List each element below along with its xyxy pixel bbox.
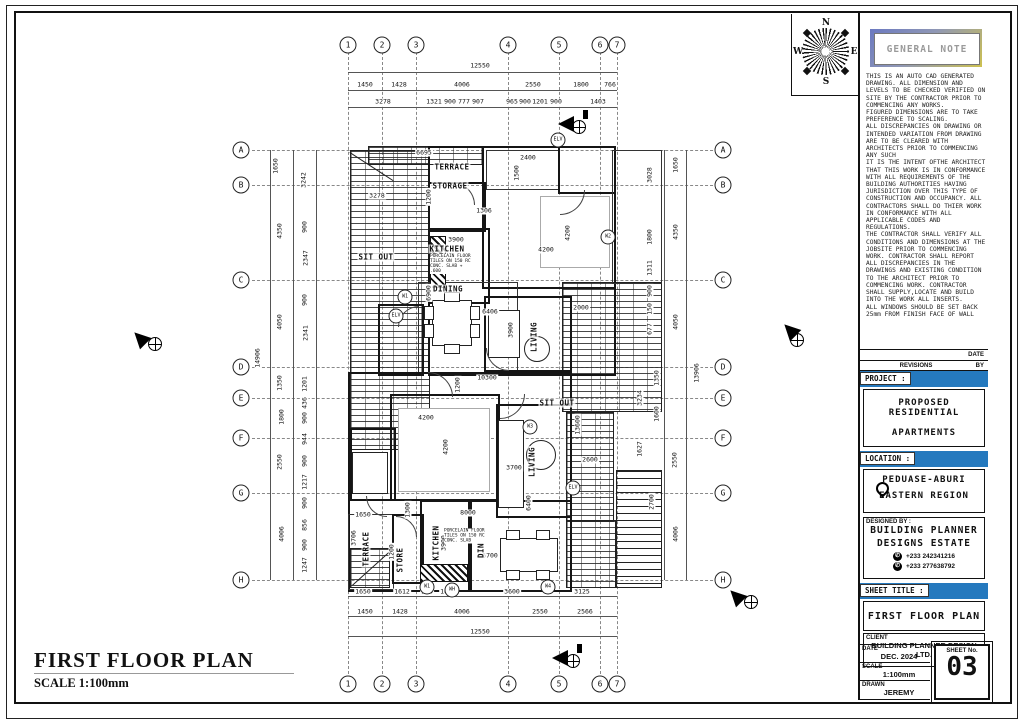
dimension-label: 2550: [672, 451, 679, 469]
grid-bubble-E: E: [233, 390, 250, 407]
dimension-label: 1650: [354, 589, 372, 596]
dimension-label: 1201: [302, 375, 309, 393]
dimension-label: 12550: [469, 63, 491, 70]
drawn-row: DRAWN JEREMY: [860, 680, 930, 700]
dimension-label: 3028: [647, 166, 654, 184]
dimension-label: 1247: [302, 556, 309, 574]
titleblock: GENERAL NOTE THIS IS AN AUTO CAD GENERAT…: [860, 11, 990, 700]
dim-line: [664, 150, 665, 580]
revisions-row: REVISIONS BY: [860, 360, 988, 371]
dimension-label: 766: [603, 82, 617, 89]
date-value: DEC. 2024: [868, 652, 930, 661]
date-row: DATE DEC. 2024: [860, 644, 930, 663]
dimension-label: 4050: [673, 313, 680, 331]
plan-dimension-label: 1200: [426, 188, 433, 206]
plan-dimension-label: 3900: [447, 237, 465, 244]
sheet-title-label: SHEET TITLE :: [860, 584, 929, 597]
dimension-label: 900: [302, 411, 309, 425]
room-label: STORE: [396, 546, 405, 573]
floor-finish-note: PORCELAIN FLOOR TILES ON 150 RC CONC. SL…: [430, 254, 474, 274]
project-line1: PROPOSED RESIDENTIAL: [864, 398, 984, 418]
dimension-label: 900: [302, 538, 309, 552]
room-label: KITCHEN: [428, 245, 465, 254]
dimension-label: 2347: [303, 249, 310, 267]
plan-dimension-label: 8000: [459, 510, 477, 517]
grid-bubble-2: 2: [374, 37, 391, 54]
chair: [424, 306, 434, 320]
plan-dimension-label: 1200: [389, 543, 396, 561]
chair: [444, 292, 460, 302]
dimension-label: 1600: [654, 405, 661, 423]
chair: [536, 530, 550, 540]
dimension-label: 1311: [647, 259, 654, 277]
plan-dimension-label: 1200: [455, 376, 462, 394]
chair: [444, 344, 460, 354]
plan-dimension-label: 4200: [537, 247, 555, 254]
general-note-title: GENERAL NOTE: [887, 44, 968, 55]
location-box: PEDUASE-ABURI EASTERN REGION: [863, 469, 985, 513]
section-marker-flag: [583, 110, 588, 119]
dimension-label: 2550: [524, 82, 542, 89]
plan-dimension-label: 2400: [519, 155, 537, 162]
room-label: SIT OUT: [538, 399, 575, 408]
dimension-label: 4006: [279, 525, 286, 543]
dining-table-lower: [500, 538, 558, 572]
compass-se-icon: [841, 67, 849, 75]
dimension-label: 900: [302, 454, 309, 468]
chair: [506, 530, 520, 540]
plan-dimension-label: 6406: [481, 309, 499, 316]
dimension-label: 1450: [356, 609, 374, 616]
dimension-label: 1321: [425, 99, 443, 106]
dimension-label: 2341: [303, 324, 310, 342]
dimension-label: 4050: [277, 313, 284, 331]
compass-s: S: [823, 77, 830, 87]
dim-line: [348, 90, 617, 91]
dimension-label: 856: [302, 518, 309, 532]
plan-dimension-label: 3700: [505, 465, 523, 472]
grid-bubble-D: D: [233, 359, 250, 376]
grid-bubble-E: E: [715, 390, 732, 407]
grid-bubble-H: H: [715, 572, 732, 589]
revisions-date-row: DATE: [860, 349, 988, 360]
dimension-label: 1217: [302, 473, 309, 491]
dim-line: [348, 596, 617, 597]
dimension-label: 3278: [374, 99, 392, 106]
stairs: [616, 470, 662, 588]
sheet-title-box: FIRST FLOOR PLAN: [863, 601, 985, 631]
section-marker-ring: [566, 654, 580, 668]
dimension-label: 1428: [391, 609, 409, 616]
dimension-label: 1350: [277, 374, 284, 392]
grid-bubble-B: B: [233, 177, 250, 194]
window-marker: WH: [445, 583, 460, 598]
location-bar: LOCATION :: [860, 451, 988, 467]
dimension-label: 436: [302, 396, 309, 410]
plan-dimension-label: 1650: [354, 512, 372, 519]
plan-scale: SCALE 1:100mm: [34, 676, 129, 691]
project-line2: APARTMENTS: [864, 428, 984, 438]
plan-dimension-label: 1300: [405, 501, 412, 519]
grid-bubble-C: C: [715, 272, 732, 289]
grid-bubble-A: A: [233, 142, 250, 159]
plan-dimension-label: 6400: [526, 494, 533, 512]
designer-line2: DESIGNS ESTATE: [864, 538, 984, 549]
dim-line: [270, 150, 271, 580]
scale-value: 1:100mm: [868, 670, 930, 679]
section-marker-ring: [572, 120, 586, 134]
phone-number-2: +233 277638792: [906, 563, 955, 570]
dining-table-upper: [432, 300, 472, 346]
dimension-label: 2550: [277, 453, 284, 471]
general-note-body: THIS IS AN AUTO CAD GENERATED DRAWING. A…: [866, 73, 986, 318]
dimension-label: 4006: [453, 609, 471, 616]
phone-icon: ✆: [893, 562, 902, 571]
grid-bubble-B: B: [715, 177, 732, 194]
plan-dimension-label: 4200: [443, 438, 450, 456]
grid-bubble-7: 7: [609, 37, 626, 54]
dimension-label: 2550: [531, 609, 549, 616]
room-label: DINING: [432, 285, 464, 294]
grid-bubble-5: 5: [551, 37, 568, 54]
dimension-label: 900: [302, 293, 309, 307]
dimension-label: 907: [471, 99, 485, 106]
dimension-label: 3234: [637, 389, 644, 407]
dimension-label: 4350: [277, 222, 284, 240]
dimension-label: 2700: [649, 493, 656, 511]
dimension-label: 900: [302, 496, 309, 510]
dim-line: [348, 616, 617, 617]
dimension-label: 1800: [647, 228, 654, 246]
dim-line: [686, 150, 687, 580]
chair: [536, 570, 550, 580]
designed-by-box: DESIGNED BY : BUILDING PLANNER DESIGNS E…: [863, 517, 985, 579]
drawn-value: JEREMY: [868, 688, 930, 697]
chair: [424, 324, 434, 338]
dimension-label: 900: [443, 99, 457, 106]
room-label: LIVING: [528, 446, 537, 478]
plan-dimension-label: 13600: [575, 414, 582, 436]
hatch-bottom-right: [566, 520, 616, 588]
grid-bubble-D: D: [715, 359, 732, 376]
floor-finish-note: PORCELAIN FLOOR TILES ON 150 RC CONC. SL…: [444, 529, 488, 544]
dim-line: [348, 72, 617, 73]
dimension-label: 1350: [654, 369, 661, 387]
dimension-label: 3242: [301, 171, 308, 189]
wall-right-wing: [612, 150, 662, 284]
dimension-label: 1800: [279, 408, 286, 426]
scale-row: SCALE 1:100mm: [860, 662, 930, 681]
dimension-label: 150: [647, 302, 654, 316]
room-label: STORAGE: [431, 182, 468, 191]
dimension-label: 900: [518, 99, 532, 106]
revisions-title: REVISIONS: [860, 363, 972, 369]
plan-dimension-label: 4200: [417, 415, 435, 422]
chair: [470, 306, 480, 320]
grid-bubble-4: 4: [500, 676, 517, 693]
dimension-label: 965: [505, 99, 519, 106]
dimension-label: 1800: [572, 82, 590, 89]
dimension-label: 4350: [673, 223, 680, 241]
plan-dimension-label: 1500: [514, 164, 521, 182]
grid-bubble-3: 3: [408, 37, 425, 54]
compass-e: E: [851, 47, 858, 57]
room-label: SIT OUT: [357, 253, 394, 262]
section-marker-ring: [744, 595, 758, 609]
grid-bubble-6: 6: [592, 676, 609, 693]
dimension-label: 944: [302, 432, 309, 446]
grid-bubble-F: F: [715, 430, 732, 447]
grid-bubble-G: G: [715, 485, 732, 502]
grid-bubble-3: 3: [408, 676, 425, 693]
section-marker-ring: [148, 337, 162, 351]
revisions-by-label: BY: [976, 363, 984, 369]
dimension-label: 4006: [453, 82, 471, 89]
sheet-no-value: 03: [936, 654, 988, 680]
dimension-label: 677: [647, 322, 654, 336]
room-label: KITCHEN: [432, 524, 441, 561]
dimension-label: 1650: [273, 157, 280, 175]
dimension-label: 1650: [673, 156, 680, 174]
room-label: TERRACE: [433, 163, 470, 172]
grid-bubble-6: 6: [592, 37, 609, 54]
dimension-label: 3125: [573, 589, 591, 596]
plan-dimension-label: 3278: [368, 193, 386, 200]
location-label: LOCATION :: [860, 452, 915, 465]
window-marker: ELV: [551, 133, 566, 148]
dimension-label: 1201: [531, 99, 549, 106]
general-note-frame: GENERAL NOTE: [870, 29, 982, 67]
dimension-label: 1403: [589, 99, 607, 106]
dimension-label: 1428: [390, 82, 408, 89]
room-label: LIVING: [530, 321, 539, 353]
dimension-label: 900: [302, 220, 309, 234]
compass-w: W: [793, 47, 803, 57]
north-compass: N E S W: [791, 14, 859, 96]
grid-bubble-G: G: [233, 485, 250, 502]
plan-dimension-label: 10300: [476, 375, 498, 382]
window-marker: W1: [398, 290, 413, 305]
dimension-label: 1627: [637, 440, 644, 458]
dimension-label: 1612: [393, 589, 411, 596]
dimension-label: 900: [549, 99, 563, 106]
window-marker: ELV: [389, 309, 404, 324]
compass-n: N: [822, 18, 830, 28]
meta-grid: DATE DEC. 2024 SCALE 1:100mm DRAWN JEREM…: [860, 644, 988, 700]
window-marker: W4: [541, 580, 556, 595]
chair: [506, 570, 520, 580]
window-marker: W1: [420, 580, 435, 595]
project-label: PROJECT :: [860, 372, 911, 385]
dimension-label: 2566: [576, 609, 594, 616]
grid-bubble-5: 5: [551, 676, 568, 693]
grid-bubble-1: 1: [340, 676, 357, 693]
grid-bubble-A: A: [715, 142, 732, 159]
chair: [470, 324, 480, 338]
grid-bubble-2: 2: [374, 676, 391, 693]
dimension-label: 14906: [255, 347, 262, 369]
dim-line: [293, 150, 294, 580]
plan-dimension-label: 6695: [415, 150, 433, 157]
phone-icon: ✆: [893, 552, 902, 561]
plan-title: FIRST FLOOR PLAN: [34, 648, 294, 674]
revisions-date-label: DATE: [968, 352, 984, 358]
plan-dimension-label: 3706: [351, 529, 358, 547]
plan-dimension-label: 2600: [581, 457, 599, 464]
window-marker: W2: [601, 230, 616, 245]
window-marker: W3: [523, 420, 538, 435]
project-box: PROPOSED RESIDENTIAL APARTMENTS: [863, 389, 985, 447]
dimension-label: 900: [647, 284, 654, 298]
sheet-title-value: FIRST FLOOR PLAN: [864, 611, 984, 622]
grid-bubble-F: F: [233, 430, 250, 447]
plan-dimension-label: 4200: [565, 224, 572, 242]
plan-dimension-label: 3900: [508, 321, 515, 339]
sheet-title-bar: SHEET TITLE :: [860, 583, 988, 599]
dim-line: [348, 107, 617, 108]
dimension-label: 13906: [694, 362, 701, 384]
sheet-number-box: SHEET No. 03: [934, 644, 990, 700]
drawing-sheet: N E S W 11223344556677AABBCCDDEEFFGGHH: [0, 0, 1024, 724]
dim-line: [316, 150, 317, 580]
dim-line: [348, 636, 617, 637]
dimension-label: 1450: [356, 82, 374, 89]
phone-number-1: +233 242341216: [906, 553, 955, 560]
shower-box: [352, 452, 388, 494]
designer-line1: BUILDING PLANNER: [864, 525, 984, 536]
grid-bubble-4: 4: [500, 37, 517, 54]
wall-wc-upper: [558, 146, 616, 194]
dimension-label: 777: [457, 99, 471, 106]
grid-bubble-1: 1: [340, 37, 357, 54]
section-marker-flag: [577, 644, 582, 653]
grid-bubble-C: C: [233, 272, 250, 289]
plan-dimension-label: 2000: [572, 305, 590, 312]
dimension-label: 3600: [503, 589, 521, 596]
section-marker-ring: [790, 333, 804, 347]
window-marker: ELV: [566, 481, 581, 496]
grid-bubble-H: H: [233, 572, 250, 589]
grid-bubble-7: 7: [609, 676, 626, 693]
dimension-label: 12550: [469, 629, 491, 636]
room-label: TERRACE: [362, 530, 371, 567]
plan-dimension-label: 1306: [475, 208, 493, 215]
project-bar: PROJECT :: [860, 371, 988, 387]
dimension-label: 4006: [673, 525, 680, 543]
